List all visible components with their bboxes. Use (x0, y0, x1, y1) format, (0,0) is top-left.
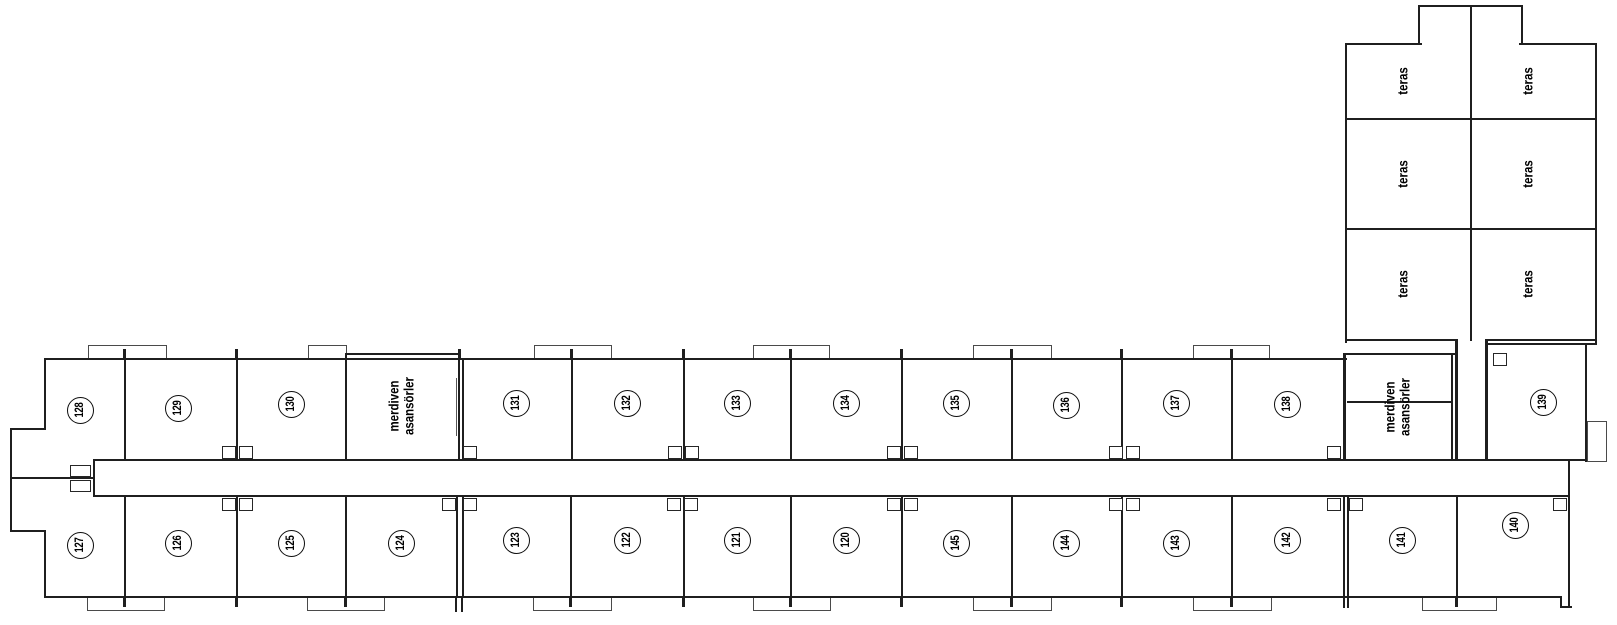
wall-segment (10, 428, 46, 430)
door-symbol (685, 446, 699, 459)
wall-segment (1011, 497, 1013, 598)
balcony-ledge (753, 596, 831, 611)
door-symbol (463, 498, 477, 511)
wall-stub (235, 349, 238, 359)
room-number: 123 (510, 532, 522, 547)
wall-stub (1120, 349, 1123, 359)
wall-stub (900, 597, 903, 607)
wall-stub (344, 597, 347, 607)
door-symbol (442, 498, 456, 511)
room-label-145: 145 (943, 530, 970, 557)
wall-segment (236, 358, 238, 460)
room-label-125: 125 (278, 530, 305, 557)
room-label-128: 128 (67, 397, 94, 424)
stairs-label-line2: asansörler (402, 377, 417, 435)
door-symbol (463, 446, 477, 459)
room-number: 136 (1060, 397, 1072, 412)
room-number: 140 (1509, 517, 1521, 532)
wall-segment (1231, 358, 1233, 460)
wall-segment (44, 358, 46, 430)
room-number: 137 (1170, 395, 1182, 410)
door-symbol (70, 480, 91, 492)
wall-segment (1451, 353, 1453, 460)
room-number: 127 (74, 537, 86, 552)
wall-segment (901, 497, 903, 598)
room-number: 126 (172, 535, 184, 550)
wall-segment (10, 428, 12, 532)
door-symbol (70, 465, 91, 477)
terrace-label: teras (1522, 67, 1537, 94)
room-number: 143 (1170, 535, 1182, 550)
wall-stub (682, 597, 685, 607)
wall-segment (1345, 43, 1347, 343)
room-label-129: 129 (165, 395, 192, 422)
door-symbol (904, 498, 918, 511)
door-symbol (1126, 498, 1140, 511)
wall-segment (1595, 43, 1597, 345)
terrace-label: teras (1522, 160, 1537, 187)
wall-segment (345, 353, 460, 355)
room-label-136: 136 (1053, 392, 1080, 419)
room-label-137: 137 (1163, 390, 1190, 417)
wall-segment (1343, 497, 1345, 598)
room-number: 139 (1537, 394, 1549, 409)
door-symbol (239, 446, 253, 459)
wall-segment (1488, 339, 1597, 341)
room-number: 142 (1281, 532, 1293, 547)
room-number: 130 (285, 396, 297, 411)
wall-stub (1120, 597, 1123, 607)
wall-segment (46, 358, 1347, 360)
wall-segment (1345, 43, 1422, 45)
wall-stub (455, 597, 457, 612)
door-symbol (1126, 446, 1140, 459)
wall-stub (789, 597, 792, 607)
wall-segment (1485, 339, 1488, 461)
wall-stub (1010, 349, 1013, 359)
wall-segment (236, 497, 238, 598)
room-number: 135 (950, 395, 962, 410)
wall-segment (1347, 339, 1457, 341)
wall-stub (123, 597, 126, 607)
wall-segment (1231, 497, 1233, 598)
room-label-127: 127 (67, 532, 94, 559)
wall-stub (123, 349, 126, 359)
room-number: 125 (285, 535, 297, 550)
wall-segment (1343, 353, 1346, 460)
room-number: 141 (1396, 532, 1408, 547)
room-label-120: 120 (833, 527, 860, 554)
room-label-130: 130 (278, 391, 305, 418)
wall-stub (1230, 349, 1233, 359)
wall-stub (458, 349, 461, 359)
wall-stub (1343, 597, 1345, 608)
wall-segment (1347, 118, 1595, 120)
wall-segment (462, 358, 464, 460)
wall-segment (1347, 497, 1349, 598)
door-symbol (1493, 353, 1507, 366)
wall-segment (10, 530, 46, 532)
wall-segment (1418, 5, 1420, 45)
room-number: 122 (621, 532, 633, 547)
wall-stub (570, 349, 573, 359)
door-symbol (1327, 498, 1341, 511)
elevator-shaft-wall (456, 378, 457, 436)
wall-segment (790, 497, 792, 598)
room-label-121: 121 (724, 527, 751, 554)
balcony-ledge (87, 596, 165, 611)
wall-segment (1488, 343, 1587, 345)
wall-stub (569, 597, 572, 607)
room-label-123: 123 (503, 527, 530, 554)
room-number: 134 (840, 395, 852, 410)
wall-segment (1519, 43, 1597, 45)
room-label-142: 142 (1274, 527, 1301, 554)
room-label-132: 132 (614, 390, 641, 417)
wall-stub (682, 349, 685, 359)
wall-segment (683, 497, 685, 598)
wall-stub (235, 597, 238, 607)
terrace-label: teras (1397, 270, 1412, 297)
room-label-122: 122 (614, 527, 641, 554)
corridor-wall (93, 459, 95, 497)
room-number: 133 (731, 395, 743, 410)
wall-segment (1347, 228, 1595, 230)
door-symbol (1109, 446, 1123, 459)
room-label-126: 126 (165, 530, 192, 557)
room-label-139: 139 (1530, 389, 1557, 416)
room-number: 121 (731, 532, 743, 547)
wall-segment (1456, 497, 1458, 598)
balcony-ledge (88, 345, 167, 359)
room-label-140: 140 (1502, 512, 1529, 539)
room-number: 132 (621, 395, 633, 410)
wall-segment (571, 358, 573, 460)
room-number: 131 (510, 395, 522, 410)
stairs-label-line1: merdiven (387, 377, 402, 435)
wall-stub (1347, 597, 1349, 608)
terrace-label: teras (1522, 270, 1537, 297)
wall-segment (458, 353, 460, 460)
wall-segment (44, 530, 46, 598)
door-symbol (887, 446, 901, 459)
room-label-131: 131 (503, 390, 530, 417)
wall-segment (124, 358, 126, 460)
wall-stub (1010, 597, 1013, 607)
wall-segment (570, 497, 572, 598)
room-number: 145 (950, 535, 962, 550)
door-symbol (1327, 446, 1341, 459)
wall-segment (456, 497, 458, 598)
room-label-133: 133 (724, 390, 751, 417)
door-symbol (887, 498, 901, 511)
door-symbol (667, 498, 681, 511)
room-label-143: 143 (1163, 530, 1190, 557)
wall-segment (1455, 339, 1458, 461)
door-symbol (222, 446, 236, 459)
wall-segment (1568, 459, 1570, 608)
stairs-elevators-label: merdiven asansörler (387, 377, 416, 435)
wall-segment (345, 353, 347, 460)
room-label-144: 144 (1053, 530, 1080, 557)
wall-stub (789, 349, 792, 359)
room-number: 144 (1060, 535, 1072, 550)
balcony-ledge (533, 596, 612, 611)
terrace-label: teras (1397, 160, 1412, 187)
wall-segment (901, 358, 903, 460)
wall-segment (1560, 606, 1572, 608)
stairs-label-line1: merdiven (1383, 378, 1398, 436)
room-number: 129 (172, 400, 184, 415)
room-label-135: 135 (943, 390, 970, 417)
balcony-ledge (534, 345, 612, 359)
wall-segment (1011, 358, 1013, 460)
balcony-ledge (1422, 596, 1497, 611)
wall-segment (10, 477, 93, 479)
door-symbol (1553, 498, 1567, 511)
room-number: 128 (74, 402, 86, 417)
wall-stub (461, 597, 463, 612)
wall-segment (462, 497, 464, 598)
stairs-label-line2: asansörler (1398, 378, 1413, 436)
door-symbol (1349, 498, 1363, 511)
room-number: 138 (1281, 396, 1293, 411)
wall-segment (1521, 5, 1523, 45)
wall-segment (1470, 5, 1472, 341)
room-label-124: 124 (388, 530, 415, 557)
wall-segment (1121, 497, 1123, 598)
wall-segment (790, 358, 792, 460)
room-label-134: 134 (833, 390, 860, 417)
terrace-label: teras (1397, 67, 1412, 94)
door-symbol (904, 446, 918, 459)
door-symbol (239, 498, 253, 511)
corridor-wall (93, 459, 1587, 461)
wall-segment (1343, 353, 1455, 355)
wall-stub (1230, 597, 1233, 607)
wall-segment (46, 596, 1562, 598)
wall-segment (683, 358, 685, 460)
floor-plan: teras teras teras teras teras teras (0, 0, 1617, 625)
room-label-138: 138 (1274, 391, 1301, 418)
balcony-ledge (1587, 421, 1607, 462)
wall-segment (1121, 358, 1123, 460)
room-number: 124 (395, 535, 407, 550)
wall-stub (1455, 597, 1458, 607)
door-symbol (668, 446, 682, 459)
wall-segment (345, 497, 347, 598)
wall-segment (1585, 343, 1587, 462)
door-symbol (684, 498, 698, 511)
door-symbol (222, 498, 236, 511)
door-symbol (1109, 498, 1123, 511)
balcony-ledge (308, 345, 347, 359)
room-label-141: 141 (1389, 527, 1416, 554)
wall-segment (124, 497, 126, 598)
stairs-elevators-label: merdiven asansörler (1383, 378, 1412, 436)
room-number: 120 (840, 532, 852, 547)
wall-stub (900, 349, 903, 359)
